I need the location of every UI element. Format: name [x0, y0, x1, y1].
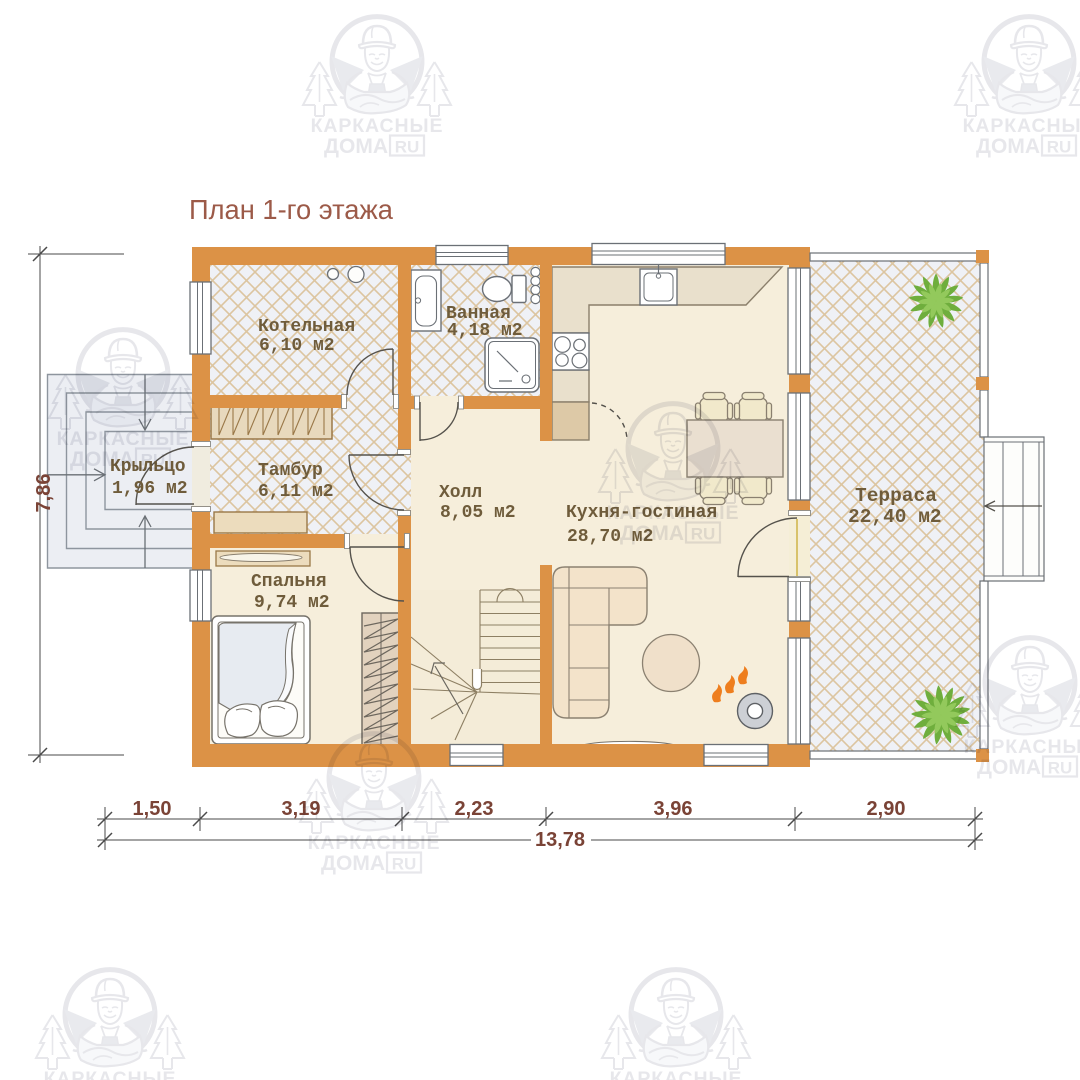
svg-text:3,96: 3,96 [654, 798, 693, 820]
svg-text:9,74 м2: 9,74 м2 [254, 593, 330, 613]
svg-text:8,05 м2: 8,05 м2 [440, 503, 516, 523]
svg-text:6,11 м2: 6,11 м2 [258, 482, 334, 502]
svg-text:2,90: 2,90 [867, 798, 906, 820]
svg-text:22,40 м2: 22,40 м2 [848, 506, 942, 528]
svg-text:2,23: 2,23 [455, 798, 494, 820]
svg-text:13,78: 13,78 [535, 829, 585, 851]
svg-text:4,18 м2: 4,18 м2 [447, 321, 523, 341]
svg-text:Котельная: Котельная [258, 317, 355, 337]
svg-text:Спальня: Спальня [251, 572, 327, 592]
svg-text:1,50: 1,50 [133, 798, 172, 820]
svg-text:7,86: 7,86 [33, 474, 55, 513]
svg-text:Тамбур: Тамбур [258, 460, 323, 481]
svg-text:Терраса: Терраса [855, 485, 937, 507]
svg-text:3,19: 3,19 [282, 798, 321, 820]
svg-text:1,96 м2: 1,96 м2 [112, 479, 188, 499]
svg-text:Холл: Холл [439, 483, 482, 503]
svg-text:6,10 м2: 6,10 м2 [259, 336, 335, 356]
svg-text:План 1-го этажа: План 1-го этажа [189, 194, 394, 225]
